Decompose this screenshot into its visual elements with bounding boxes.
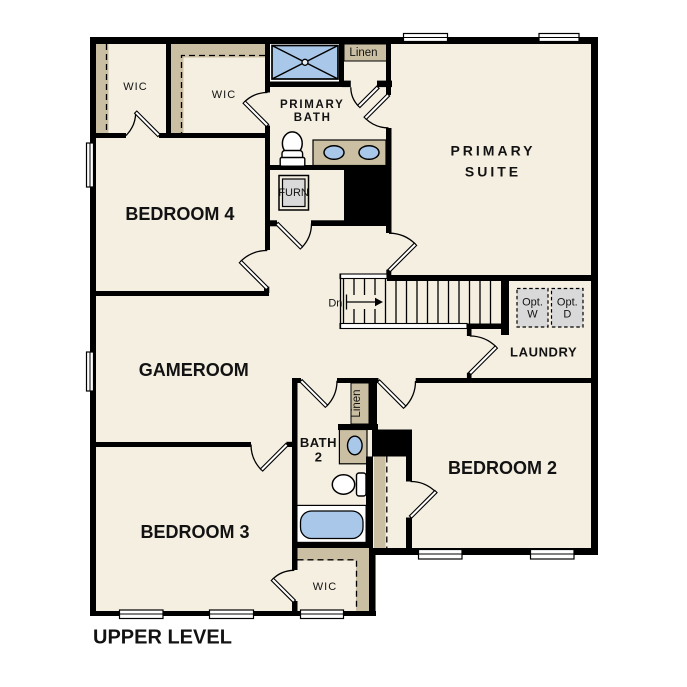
svg-text:WIC: WIC <box>313 581 337 593</box>
svg-text:BEDROOM 2: BEDROOM 2 <box>448 458 557 478</box>
svg-text:SUITE: SUITE <box>465 164 521 180</box>
svg-text:Opt.: Opt. <box>557 297 578 309</box>
svg-text:WIC: WIC <box>123 81 147 93</box>
svg-text:W: W <box>527 309 538 321</box>
svg-text:BATH: BATH <box>294 112 332 124</box>
svg-text:Opt.: Opt. <box>522 297 543 309</box>
svg-text:PRIMARY: PRIMARY <box>450 143 535 159</box>
svg-text:BEDROOM 4: BEDROOM 4 <box>125 204 234 224</box>
svg-text:BATH: BATH <box>300 435 337 450</box>
svg-text:D: D <box>563 309 571 321</box>
svg-text:FURN: FURN <box>278 187 309 199</box>
svg-text:Dn: Dn <box>328 298 342 310</box>
svg-text:BEDROOM 3: BEDROOM 3 <box>140 522 249 542</box>
svg-text:WIC: WIC <box>212 89 236 101</box>
svg-text:Linen: Linen <box>351 389 363 417</box>
svg-text:GAMEROOM: GAMEROOM <box>139 360 249 380</box>
svg-text:Linen: Linen <box>349 47 377 59</box>
svg-text:PRIMARY: PRIMARY <box>280 99 345 111</box>
svg-text:UPPER LEVEL: UPPER LEVEL <box>93 626 232 648</box>
svg-text:LAUNDRY: LAUNDRY <box>510 344 577 359</box>
svg-text:2: 2 <box>315 449 322 464</box>
